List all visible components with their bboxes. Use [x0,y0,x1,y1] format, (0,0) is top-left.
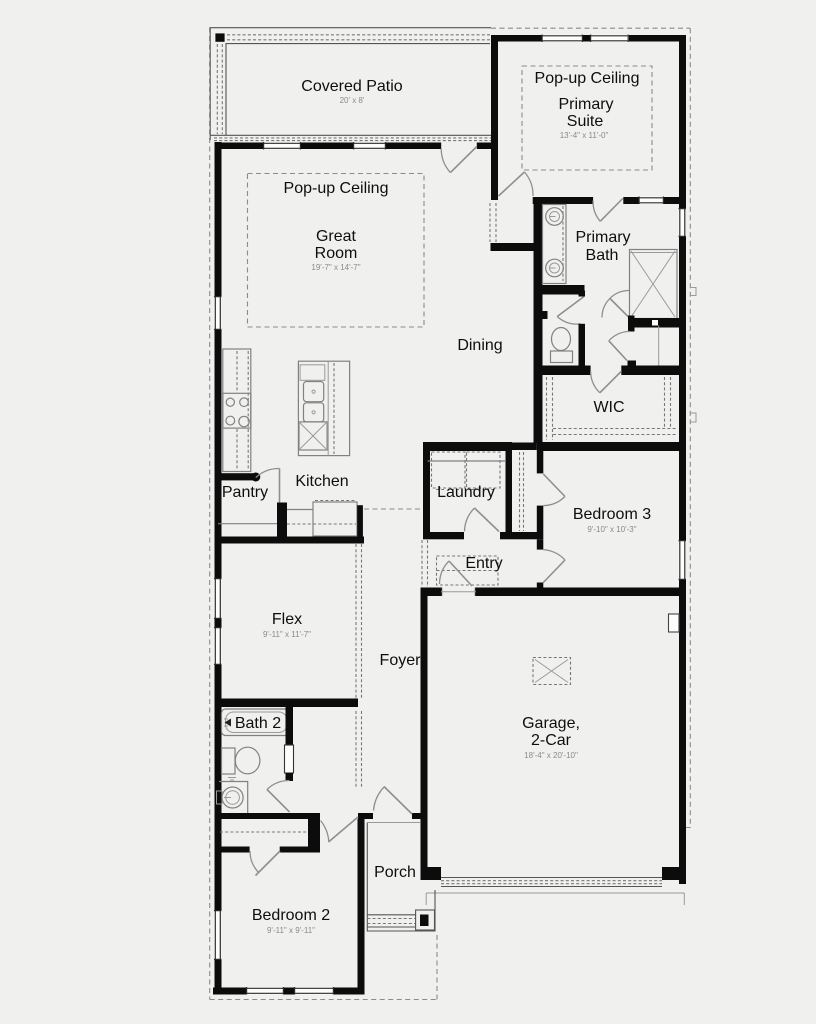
svg-text:Foyer: Foyer [380,652,422,669]
svg-text:9'-11" x 11'-7": 9'-11" x 11'-7" [263,630,311,639]
svg-text:Pantry: Pantry [222,484,268,501]
svg-text:Bedroom 2: Bedroom 2 [252,907,330,924]
svg-text:13'-4" x 11'-0": 13'-4" x 11'-0" [560,131,609,140]
svg-text:Pop-up Ceiling: Pop-up Ceiling [535,70,640,87]
svg-text:Bedroom 3: Bedroom 3 [573,506,651,523]
svg-text:Covered Patio: Covered Patio [301,78,402,95]
svg-text:20' x 8': 20' x 8' [340,96,365,105]
svg-text:Porch: Porch [374,864,416,881]
svg-text:19'-7" x 14'-7": 19'-7" x 14'-7" [311,263,360,272]
svg-text:Entry: Entry [465,555,502,572]
svg-text:Primary: Primary [575,229,630,246]
svg-text:Suite: Suite [567,113,604,130]
svg-text:Bath 2: Bath 2 [235,715,281,732]
svg-text:9'-11" x 9'-11": 9'-11" x 9'-11" [267,926,315,935]
svg-text:Bath: Bath [586,247,619,264]
svg-text:Primary: Primary [558,96,613,113]
svg-text:Flex: Flex [272,611,302,628]
svg-text:Dining: Dining [457,337,502,354]
svg-text:Laundry: Laundry [437,484,495,501]
svg-text:2-Car: 2-Car [531,732,572,749]
svg-text:Room: Room [315,245,358,262]
svg-text:Garage,: Garage, [522,715,580,732]
svg-text:9'-10" x 10'-3": 9'-10" x 10'-3" [587,525,636,534]
svg-text:Pop-up Ceiling: Pop-up Ceiling [284,180,389,197]
svg-text:Kitchen: Kitchen [295,473,348,490]
svg-text:18'-4" x 20'-10": 18'-4" x 20'-10" [524,751,578,760]
svg-text:WIC: WIC [593,399,624,416]
svg-text:Great: Great [316,228,357,245]
